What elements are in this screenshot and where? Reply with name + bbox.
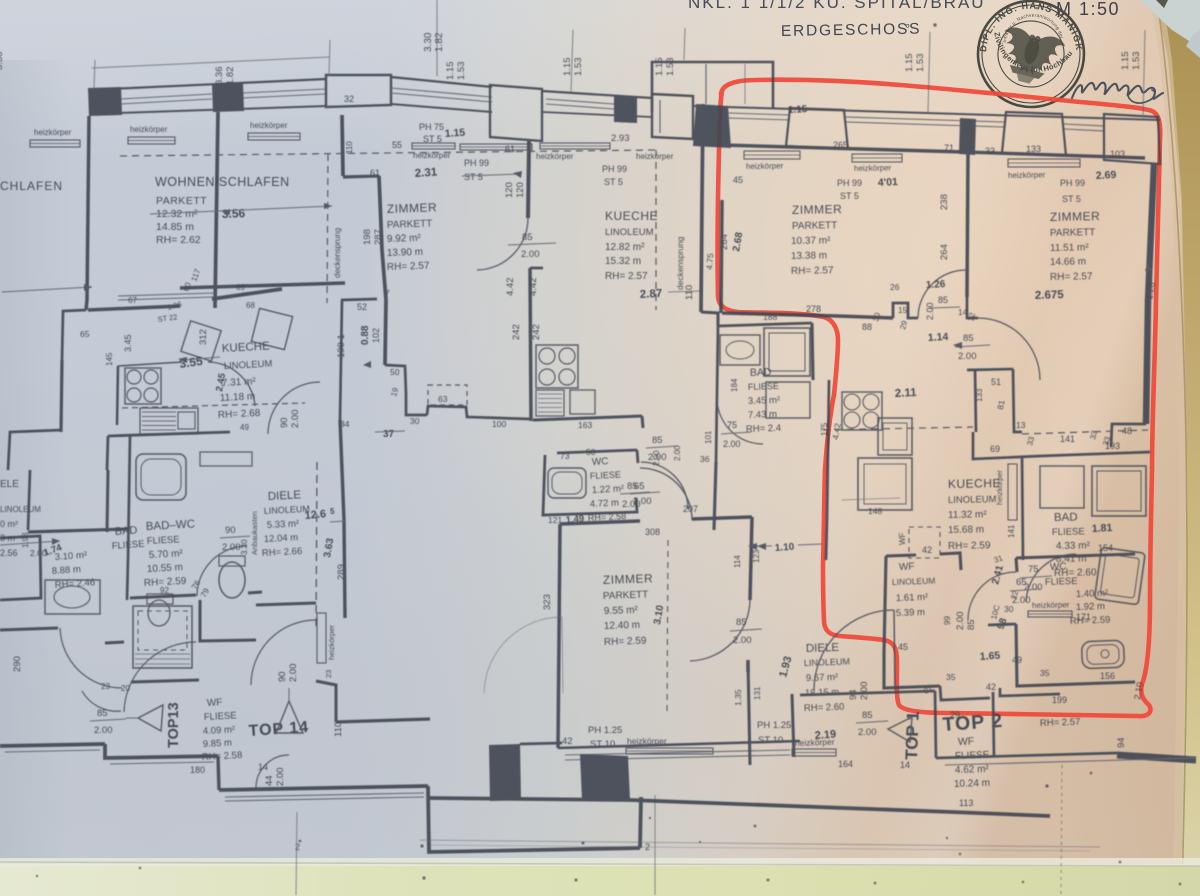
svg-text:103: 103 bbox=[1110, 149, 1125, 159]
svg-text:88: 88 bbox=[862, 322, 872, 332]
svg-text:WF: WF bbox=[958, 735, 975, 748]
svg-text:RH= 2.62: RH= 2.62 bbox=[156, 234, 201, 246]
svg-text:61: 61 bbox=[505, 144, 515, 154]
svg-text:156: 156 bbox=[1100, 671, 1115, 681]
svg-text:13.90 m: 13.90 m bbox=[387, 247, 424, 259]
svg-text:312: 312 bbox=[198, 329, 209, 345]
svg-text:308: 308 bbox=[645, 527, 660, 537]
svg-text:PARKETT: PARKETT bbox=[603, 589, 649, 602]
svg-text:20: 20 bbox=[121, 684, 130, 693]
svg-text:1.15: 1.15 bbox=[562, 58, 573, 77]
svg-text:35: 35 bbox=[946, 672, 956, 682]
svg-text:2.00: 2.00 bbox=[1024, 582, 1043, 593]
svg-text:33: 33 bbox=[985, 146, 995, 156]
svg-text:deckensprung: deckensprung bbox=[333, 228, 342, 278]
svg-text:2: 2 bbox=[295, 842, 300, 852]
svg-text:2.87: 2.87 bbox=[640, 288, 663, 301]
svg-text:2.00: 2.00 bbox=[858, 727, 877, 738]
svg-text:199 1: 199 1 bbox=[336, 334, 347, 358]
svg-text:PH 99: PH 99 bbox=[837, 178, 862, 188]
svg-text:90: 90 bbox=[279, 417, 290, 428]
svg-text:KUECHE: KUECHE bbox=[222, 340, 271, 355]
svg-text:75: 75 bbox=[727, 420, 737, 430]
svg-text:ST 5: ST 5 bbox=[464, 172, 483, 182]
svg-text:4.09 m²: 4.09 m² bbox=[203, 724, 236, 737]
svg-text:148: 148 bbox=[868, 506, 882, 516]
svg-text:FLIESE: FLIESE bbox=[748, 381, 779, 392]
svg-text:45: 45 bbox=[898, 642, 908, 652]
svg-text:heizkörper: heizkörper bbox=[636, 152, 674, 161]
svg-text:85: 85 bbox=[627, 481, 638, 492]
svg-text:14.66 m: 14.66 m bbox=[1050, 256, 1086, 268]
svg-text:2.00: 2.00 bbox=[290, 410, 301, 429]
svg-text:RH= 2.4: RH= 2.4 bbox=[746, 423, 781, 435]
svg-text:9.92 m²: 9.92 m² bbox=[387, 233, 422, 245]
svg-text:12.40 m: 12.40 m bbox=[604, 620, 641, 632]
svg-text:14: 14 bbox=[958, 307, 968, 317]
svg-text:287: 287 bbox=[373, 229, 384, 245]
svg-text:DIELE: DIELE bbox=[268, 489, 302, 503]
svg-text:94: 94 bbox=[1116, 737, 1127, 748]
svg-text:68: 68 bbox=[246, 301, 255, 310]
svg-text:163: 163 bbox=[578, 420, 592, 430]
svg-text:4.42: 4.42 bbox=[528, 278, 539, 297]
svg-text:3.45 m²: 3.45 m² bbox=[748, 395, 781, 407]
svg-text:5: 5 bbox=[330, 507, 335, 516]
svg-text:180: 180 bbox=[190, 765, 205, 775]
svg-text:36: 36 bbox=[700, 454, 710, 464]
svg-text:2.00: 2.00 bbox=[288, 664, 299, 683]
svg-text:FLIESE: FLIESE bbox=[147, 534, 180, 547]
svg-text:2.00: 2.00 bbox=[958, 351, 977, 362]
svg-text:85: 85 bbox=[736, 617, 747, 628]
svg-text:ELE: ELE bbox=[0, 479, 19, 490]
svg-text:2.11: 2.11 bbox=[895, 387, 918, 400]
svg-text:131: 131 bbox=[753, 686, 762, 700]
svg-text:101: 101 bbox=[704, 430, 713, 444]
svg-text:2.00: 2.00 bbox=[925, 302, 935, 320]
svg-text:26: 26 bbox=[890, 282, 900, 292]
svg-text:2.93: 2.93 bbox=[611, 133, 630, 144]
svg-text:2.00: 2.00 bbox=[652, 450, 661, 466]
svg-text:RH= 2.59: RH= 2.59 bbox=[1070, 615, 1111, 627]
svg-text:120: 120 bbox=[515, 182, 526, 198]
svg-text:BAD: BAD bbox=[114, 524, 137, 538]
svg-text:heizkörper: heizkörper bbox=[746, 161, 784, 171]
svg-text:1.35: 1.35 bbox=[733, 689, 743, 706]
svg-text:15.32 m: 15.32 m bbox=[605, 256, 641, 267]
svg-text:heizkörper: heizkörper bbox=[34, 128, 72, 137]
svg-text:193: 193 bbox=[1105, 441, 1120, 451]
svg-text:3.30: 3.30 bbox=[240, 539, 249, 555]
svg-text:37: 37 bbox=[383, 429, 395, 440]
svg-text:32: 32 bbox=[344, 94, 354, 104]
svg-text:9.85 m: 9.85 m bbox=[203, 737, 233, 750]
svg-text:29: 29 bbox=[950, 710, 960, 720]
svg-text:PARKETT: PARKETT bbox=[792, 220, 838, 232]
svg-text:heizkörper: heizkörper bbox=[854, 163, 892, 173]
svg-text:2.00: 2.00 bbox=[622, 499, 641, 510]
svg-text:4.33 m²: 4.33 m² bbox=[1056, 540, 1091, 552]
svg-text:242: 242 bbox=[511, 324, 522, 340]
svg-text:1.15: 1.15 bbox=[654, 58, 665, 77]
svg-text:164: 164 bbox=[838, 759, 853, 769]
svg-text:1.40 m²: 1.40 m² bbox=[1076, 588, 1109, 600]
svg-text:12.04 m: 12.04 m bbox=[264, 532, 299, 545]
svg-text:63: 63 bbox=[438, 394, 448, 404]
svg-text:heizkörper: heizkörper bbox=[130, 125, 168, 134]
svg-text:42: 42 bbox=[986, 682, 996, 692]
svg-text:2.31: 2.31 bbox=[414, 166, 438, 180]
svg-text:69: 69 bbox=[236, 283, 245, 292]
svg-text:12.6: 12.6 bbox=[304, 508, 326, 522]
svg-text:264: 264 bbox=[939, 244, 950, 260]
svg-text:13.38 m: 13.38 m bbox=[791, 250, 827, 262]
svg-text:49: 49 bbox=[240, 423, 249, 432]
svg-text:7.43 m: 7.43 m bbox=[748, 409, 777, 421]
svg-text:RH= 2.57: RH= 2.57 bbox=[791, 265, 834, 277]
svg-text:ZIMMER: ZIMMER bbox=[792, 202, 843, 217]
svg-text:RH= 2.57: RH= 2.57 bbox=[387, 261, 430, 273]
svg-text:PH 99: PH 99 bbox=[602, 164, 627, 174]
svg-text:12.32 m²: 12.32 m² bbox=[156, 208, 198, 220]
svg-text:10.24 m: 10.24 m bbox=[954, 778, 991, 790]
svg-text:85: 85 bbox=[966, 619, 977, 630]
svg-text:ERDGESCHOSS: ERDGESCHOSS bbox=[781, 21, 922, 40]
svg-text:PARKETT: PARKETT bbox=[1050, 227, 1096, 239]
svg-text:KUECHE: KUECHE bbox=[605, 209, 658, 223]
svg-text:1.14: 1.14 bbox=[928, 331, 949, 344]
svg-text:heizkörper: heizkörper bbox=[995, 469, 1004, 505]
svg-text:1.22 m²: 1.22 m² bbox=[592, 483, 625, 496]
svg-text:RH= 2.57: RH= 2.57 bbox=[605, 271, 648, 282]
svg-text:KUECHE: KUECHE bbox=[948, 476, 1001, 491]
svg-text:99: 99 bbox=[943, 616, 952, 625]
svg-text:RH= 2.68: RH= 2.68 bbox=[218, 408, 261, 421]
svg-text:50: 50 bbox=[390, 367, 400, 377]
svg-text:11.32 m²: 11.32 m² bbox=[948, 509, 988, 521]
svg-text:1.15: 1.15 bbox=[444, 127, 465, 140]
svg-text:Anbaukasten: Anbaukasten bbox=[250, 511, 259, 555]
svg-text:heizkörper: heizkörper bbox=[795, 737, 835, 748]
svg-text:55: 55 bbox=[392, 140, 402, 150]
svg-text:2.00: 2.00 bbox=[1012, 595, 1031, 606]
svg-text:12.82 m²: 12.82 m² bbox=[605, 242, 645, 253]
svg-text:42: 42 bbox=[922, 545, 932, 555]
svg-text:14: 14 bbox=[900, 760, 910, 770]
svg-text:3.56: 3.56 bbox=[222, 206, 246, 221]
svg-text:100: 100 bbox=[492, 419, 506, 429]
svg-text:110: 110 bbox=[345, 141, 354, 154]
svg-text:3.30: 3.30 bbox=[423, 32, 434, 52]
svg-text:RH= 2.60: RH= 2.60 bbox=[804, 702, 845, 714]
svg-text:10.37 m²: 10.37 m² bbox=[791, 235, 831, 247]
svg-text:1.82: 1.82 bbox=[225, 67, 236, 86]
svg-text:PH 1.25: PH 1.25 bbox=[588, 725, 622, 736]
svg-text:65: 65 bbox=[1016, 577, 1027, 588]
svg-text:LINOLEUM: LINOLEUM bbox=[0, 505, 41, 514]
svg-text:2.675: 2.675 bbox=[1035, 289, 1065, 302]
svg-text:71: 71 bbox=[944, 143, 954, 153]
svg-text:90: 90 bbox=[277, 671, 288, 682]
svg-text:1.53: 1.53 bbox=[915, 54, 926, 73]
svg-text:ZIMMER: ZIMMER bbox=[1050, 209, 1101, 224]
svg-text:85: 85 bbox=[97, 708, 108, 719]
svg-text:1.82: 1.82 bbox=[434, 32, 445, 52]
svg-text:4'01: 4'01 bbox=[878, 176, 899, 189]
svg-text:LINOLEUM: LINOLEUM bbox=[804, 656, 850, 668]
svg-text:RH= 2.66: RH= 2.66 bbox=[262, 546, 303, 559]
svg-text:50: 50 bbox=[586, 447, 596, 457]
svg-text:1.26: 1.26 bbox=[926, 279, 946, 291]
svg-text:238: 238 bbox=[939, 194, 950, 210]
svg-text:141: 141 bbox=[1007, 524, 1016, 538]
svg-text:4.75: 4.75 bbox=[704, 253, 715, 271]
svg-text:PH 1.25: PH 1.25 bbox=[757, 720, 791, 731]
svg-text:FLIESE: FLIESE bbox=[204, 710, 237, 723]
svg-text:WF: WF bbox=[898, 532, 907, 545]
svg-text:120: 120 bbox=[504, 182, 515, 198]
svg-text:0.88: 0.88 bbox=[360, 325, 371, 345]
svg-text:LINOLEUM: LINOLEUM bbox=[948, 494, 997, 506]
svg-text:4.62 m²: 4.62 m² bbox=[955, 764, 990, 776]
svg-text:1.15: 1.15 bbox=[788, 104, 808, 116]
svg-text:1.53: 1.53 bbox=[665, 58, 676, 77]
svg-text:PARKETT: PARKETT bbox=[387, 218, 433, 231]
svg-text:92: 92 bbox=[160, 586, 169, 595]
svg-text:23: 23 bbox=[101, 682, 110, 691]
svg-text:FLIESE: FLIESE bbox=[1045, 576, 1078, 588]
svg-text:51: 51 bbox=[991, 377, 1001, 387]
svg-text:RH= 2.57: RH= 2.57 bbox=[1040, 717, 1081, 729]
svg-text:289: 289 bbox=[336, 564, 347, 580]
svg-text:4.72 m: 4.72 m bbox=[590, 497, 620, 510]
svg-text:290: 290 bbox=[12, 656, 23, 672]
svg-text:123: 123 bbox=[752, 549, 761, 563]
svg-text:2.00: 2.00 bbox=[275, 768, 286, 787]
svg-text:2.69: 2.69 bbox=[1096, 169, 1117, 182]
svg-text:1.15: 1.15 bbox=[904, 54, 915, 73]
svg-text:°: ° bbox=[905, 21, 910, 36]
svg-text:0 m²: 0 m² bbox=[0, 519, 18, 529]
svg-text:278: 278 bbox=[806, 304, 821, 314]
svg-text:PARKETT: PARKETT bbox=[156, 195, 207, 207]
svg-text:242: 242 bbox=[531, 324, 542, 340]
svg-text:5.33 m²: 5.33 m² bbox=[267, 518, 300, 531]
svg-text:FLIESE: FLIESE bbox=[1052, 526, 1085, 538]
svg-text:heizkörper: heizkörper bbox=[250, 121, 288, 130]
svg-text:4.42: 4.42 bbox=[505, 278, 516, 297]
svg-text:RH= 2.59: RH= 2.59 bbox=[948, 540, 991, 552]
svg-text:RH= 2.59: RH= 2.59 bbox=[604, 636, 647, 648]
svg-text:1.53: 1.53 bbox=[456, 62, 467, 81]
svg-text:198: 198 bbox=[362, 229, 373, 245]
svg-text:8.88 m: 8.88 m bbox=[51, 564, 81, 577]
svg-text:LINOLEUM: LINOLEUM bbox=[605, 227, 654, 238]
svg-text:3.36: 3.36 bbox=[214, 67, 225, 86]
svg-text:15.68 m: 15.68 m bbox=[948, 524, 984, 536]
svg-text:323: 323 bbox=[542, 594, 553, 610]
svg-text:FLIESE: FLIESE bbox=[590, 469, 621, 481]
svg-text:BAD: BAD bbox=[750, 366, 772, 379]
svg-text:ST 10: ST 10 bbox=[590, 739, 615, 750]
svg-text:PH 99: PH 99 bbox=[1060, 178, 1085, 188]
svg-text:52: 52 bbox=[357, 302, 367, 312]
svg-text:1.98: 1.98 bbox=[21, 532, 30, 548]
svg-text:heizkörper: heizkörper bbox=[327, 624, 336, 660]
svg-text:BAD: BAD bbox=[1054, 512, 1078, 524]
svg-text:90: 90 bbox=[225, 525, 236, 536]
svg-text:154: 154 bbox=[1098, 543, 1113, 553]
svg-text:1.92 m: 1.92 m bbox=[1076, 601, 1105, 613]
svg-text:113: 113 bbox=[959, 798, 973, 808]
svg-text:110: 110 bbox=[684, 285, 695, 300]
svg-text:5.70 m²: 5.70 m² bbox=[149, 548, 184, 561]
svg-text:42: 42 bbox=[562, 736, 573, 747]
svg-text:1.61 m²: 1.61 m² bbox=[896, 592, 929, 604]
svg-text:1.53: 1.53 bbox=[1131, 52, 1142, 71]
svg-text:73: 73 bbox=[560, 451, 570, 461]
svg-text:deckensprung: deckensprung bbox=[675, 236, 685, 290]
svg-text:2.00: 2.00 bbox=[955, 612, 966, 631]
svg-text:264: 264 bbox=[719, 234, 730, 250]
svg-text:69: 69 bbox=[990, 444, 1000, 454]
svg-text:2.00: 2.00 bbox=[859, 682, 870, 701]
svg-text:1.15: 1.15 bbox=[445, 62, 456, 81]
svg-text:ZIMMER: ZIMMER bbox=[387, 200, 438, 216]
svg-text:2.00: 2.00 bbox=[94, 725, 113, 736]
svg-text:1.53: 1.53 bbox=[573, 58, 584, 77]
svg-text:heizkörper: heizkörper bbox=[413, 151, 451, 160]
svg-text:35: 35 bbox=[1040, 668, 1050, 678]
svg-text:WOHNEN/SCHLAFEN: WOHNEN/SCHLAFEN bbox=[155, 175, 290, 189]
svg-text:heizkörper: heizkörper bbox=[536, 152, 574, 161]
svg-text:ST 5: ST 5 bbox=[1062, 194, 1081, 204]
svg-text:5.39 m: 5.39 m bbox=[896, 607, 925, 619]
svg-text:RH= 2.57: RH= 2.57 bbox=[1050, 271, 1093, 283]
svg-text:114: 114 bbox=[733, 555, 742, 568]
svg-text:110: 110 bbox=[333, 722, 344, 737]
svg-text:3.30: 3.30 bbox=[0, 52, 5, 71]
svg-text:85: 85 bbox=[938, 295, 948, 305]
svg-text:9.55 m²: 9.55 m² bbox=[604, 605, 639, 617]
svg-text:2.00: 2.00 bbox=[723, 439, 741, 449]
svg-text:45: 45 bbox=[733, 175, 743, 185]
svg-text:2.56: 2.56 bbox=[0, 548, 18, 558]
svg-text:PH 99: PH 99 bbox=[464, 158, 489, 168]
svg-text:14.85 m: 14.85 m bbox=[156, 221, 194, 233]
svg-text:30: 30 bbox=[410, 416, 420, 426]
svg-text:75: 75 bbox=[1028, 564, 1039, 575]
svg-text:2.00: 2.00 bbox=[673, 445, 682, 461]
svg-text:8 m: 8 m bbox=[0, 533, 15, 543]
svg-text:2.00: 2.00 bbox=[222, 542, 241, 553]
svg-text:207: 207 bbox=[683, 504, 698, 514]
svg-text:10.55 m: 10.55 m bbox=[147, 562, 184, 575]
svg-text:184: 184 bbox=[730, 378, 739, 392]
svg-text:2.00: 2.00 bbox=[30, 548, 47, 558]
svg-text:1.65: 1.65 bbox=[979, 650, 1000, 663]
svg-text:CHLAFEN: CHLAFEN bbox=[0, 179, 63, 193]
svg-text:11.51 m²: 11.51 m² bbox=[1050, 242, 1090, 254]
svg-text:85: 85 bbox=[652, 435, 663, 446]
svg-text:14: 14 bbox=[258, 762, 268, 772]
svg-text:heizkörper: heizkörper bbox=[1032, 600, 1070, 610]
svg-text:141: 141 bbox=[1060, 434, 1075, 444]
svg-text:65: 65 bbox=[80, 329, 90, 339]
svg-text:9.67 m²: 9.67 m² bbox=[806, 672, 839, 684]
svg-text:49: 49 bbox=[1012, 655, 1022, 665]
svg-text:heizkörper: heizkörper bbox=[1008, 170, 1046, 180]
svg-text:85: 85 bbox=[522, 232, 533, 243]
svg-text:15: 15 bbox=[898, 306, 907, 315]
svg-text:81: 81 bbox=[995, 399, 1007, 410]
svg-text:85: 85 bbox=[963, 333, 974, 344]
svg-text:WF: WF bbox=[899, 561, 915, 573]
svg-text:102: 102 bbox=[371, 328, 381, 343]
svg-text:WC: WC bbox=[1050, 561, 1067, 573]
svg-text:NKL. 1 1/1/2 KU. SPITAL/BRAU: NKL. 1 1/1/2 KU. SPITAL/BRAU bbox=[688, 0, 986, 12]
svg-text:44: 44 bbox=[264, 775, 275, 786]
svg-text:ST 5: ST 5 bbox=[604, 177, 623, 187]
svg-text:1.10: 1.10 bbox=[774, 542, 795, 554]
svg-text:1.15: 1.15 bbox=[1120, 52, 1131, 71]
svg-text:2.00: 2.00 bbox=[733, 635, 752, 646]
svg-text:2.00: 2.00 bbox=[521, 249, 540, 260]
svg-text:13: 13 bbox=[1016, 420, 1026, 430]
svg-text:3.45: 3.45 bbox=[123, 334, 133, 352]
svg-text:1.81: 1.81 bbox=[1092, 522, 1113, 535]
svg-text:133: 133 bbox=[975, 388, 984, 402]
svg-text:M 1:50: M 1:50 bbox=[1056, 0, 1120, 19]
svg-text:11.18 m: 11.18 m bbox=[220, 391, 256, 404]
svg-text:85: 85 bbox=[862, 710, 873, 721]
svg-text:145: 145 bbox=[105, 352, 114, 366]
svg-text:ZIMMER: ZIMMER bbox=[603, 571, 654, 587]
svg-text:TOP13: TOP13 bbox=[166, 702, 182, 748]
svg-text:ST 5: ST 5 bbox=[840, 191, 859, 201]
svg-text:265: 265 bbox=[833, 140, 848, 150]
svg-text:67: 67 bbox=[128, 296, 137, 305]
svg-text:7: 7 bbox=[385, 288, 390, 298]
svg-text:WC: WC bbox=[592, 456, 609, 468]
svg-text:LINOLEUM: LINOLEUM bbox=[892, 575, 936, 587]
svg-text:23: 23 bbox=[324, 670, 333, 678]
svg-text:PH 75: PH 75 bbox=[419, 122, 444, 132]
svg-text:WF: WF bbox=[207, 697, 223, 709]
svg-text:199: 199 bbox=[1052, 695, 1067, 705]
svg-text:133: 133 bbox=[1026, 144, 1041, 154]
